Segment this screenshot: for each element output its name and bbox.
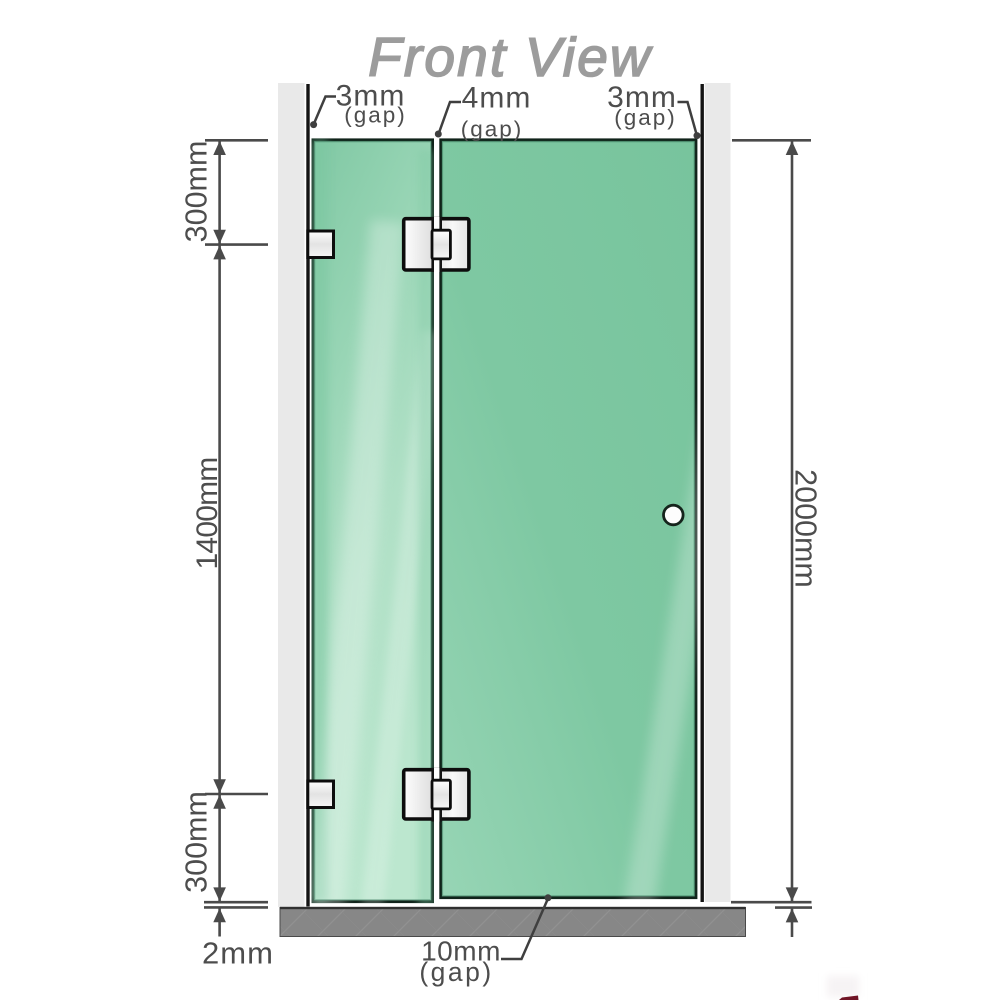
svg-text:2000mm: 2000mm: [789, 469, 823, 588]
svg-text:(gap): (gap): [461, 117, 524, 142]
svg-text:Front View: Front View: [368, 26, 653, 88]
svg-text:4mm: 4mm: [462, 82, 532, 115]
svg-text:300mm: 300mm: [180, 141, 214, 243]
svg-text:300mm: 300mm: [180, 791, 214, 893]
svg-text:(gap): (gap): [614, 105, 677, 130]
svg-text:1400mm: 1400mm: [191, 458, 224, 570]
svg-text:2mm: 2mm: [202, 936, 274, 971]
svg-text:(gap): (gap): [419, 957, 493, 987]
svg-text:(gap): (gap): [344, 103, 407, 128]
